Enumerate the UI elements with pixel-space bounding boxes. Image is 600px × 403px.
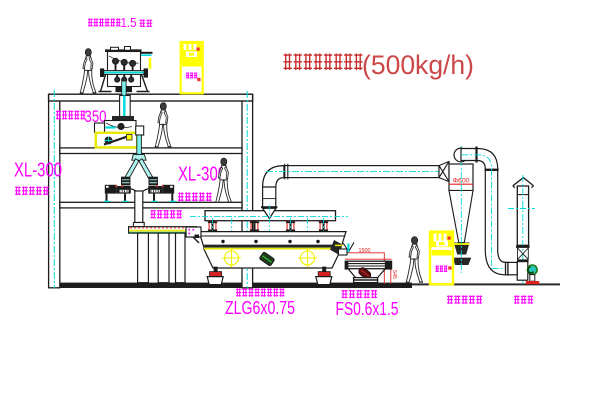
svg-text:FS0.6x1.5: FS0.6x1.5 bbox=[336, 298, 399, 319]
svg-text:ZLG6x0.75: ZLG6x0.75 bbox=[225, 297, 295, 318]
svg-text:545: 545 bbox=[391, 270, 397, 279]
svg-text:(500kg/h): (500kg/h) bbox=[362, 50, 474, 80]
svg-text:XL-300: XL-300 bbox=[14, 160, 62, 182]
svg-text:1.5: 1.5 bbox=[121, 15, 137, 30]
svg-text:1500: 1500 bbox=[359, 248, 371, 254]
